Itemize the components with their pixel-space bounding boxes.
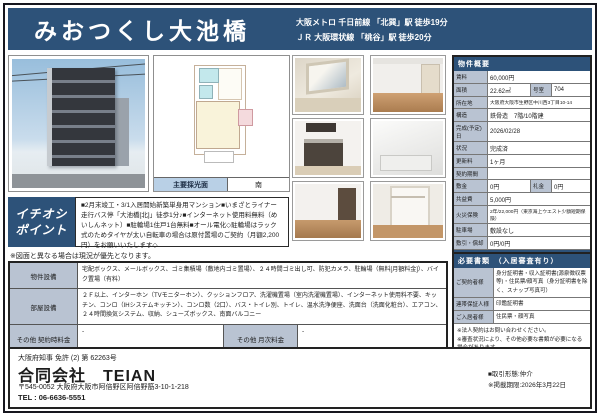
- window: [306, 58, 349, 94]
- fire-insurance-label: 火災保険: [454, 206, 488, 223]
- table-row: 物件設備 宅配ボックス、メールボックス、ゴミ集積場（敷地内ゴミ置場）、２４時間ゴ…: [10, 263, 446, 289]
- bathtub: [380, 155, 432, 171]
- table-row: ご契約者様 身分証明書・収入証明書(源泉徴収票等)・住民票/顔写真（身分証明書を…: [454, 268, 590, 298]
- kitchen-counter: [304, 139, 342, 166]
- highlight-label: イチオシ ポイント: [8, 197, 75, 247]
- floorplan-balcony: [204, 151, 234, 163]
- interior-photo-6: [370, 181, 446, 241]
- table-row: 更新料 1ヶ月: [454, 155, 590, 168]
- building: [47, 68, 116, 166]
- address-value: 大阪府大阪市生野区中川西3丁目10-14: [488, 97, 590, 108]
- table-row: 完成(予定)日 2026/02/28: [454, 122, 590, 142]
- status-value: 完成済: [488, 142, 590, 154]
- contractor-documents: 身分証明書・収入証明書(源泉徴収票等)・住民票/顔写真（身分証明書を除く、スナッ…: [494, 268, 590, 297]
- key-money-label: 礼金: [530, 180, 552, 192]
- doorway: [338, 188, 356, 220]
- common-fee-value: 5,000円: [488, 193, 590, 205]
- table-row: 部屋設備 ２Ｆ以上、インターホン（TVモニターホン）、クッションフロア、洗濯機置…: [10, 289, 446, 325]
- interior-photo-4: [370, 118, 446, 178]
- access-line-2: ＪＲ 大阪環状線 「桃谷」駅 徒歩20分: [296, 30, 448, 45]
- highlight-label-line2: ポイント: [15, 222, 67, 238]
- lighting-direction-bar: 主要採光面 南: [154, 177, 289, 191]
- rent-value: 60,000円: [488, 71, 590, 83]
- table-row: 共益費 5,000円: [454, 193, 590, 206]
- structure-label: 構造: [454, 109, 488, 121]
- address-label: 所在地: [454, 97, 488, 108]
- highlight-text: ■2月末竣工・3/1入居開始新築単身用マンション■いまざとライナー走行バス停「大…: [75, 197, 289, 247]
- door: [421, 64, 440, 95]
- renewal-fee-value: 1ヶ月: [488, 155, 590, 167]
- contractor-label: ご契約者様: [454, 268, 494, 297]
- floorplan-frame: 主要採光面 南: [153, 55, 290, 192]
- table-row: 面積 22.62㎡ 号室 704: [454, 84, 590, 97]
- parking-label: 駐車場: [454, 224, 488, 236]
- table-row: 所在地 大阪府大阪市生野区中川西3丁目10-14: [454, 97, 590, 109]
- property-title: みおつくし大池橋: [34, 12, 250, 46]
- interior-photo-2: [370, 55, 446, 115]
- table-row: 敷引・償却 0円/0円: [454, 237, 590, 250]
- resident-documents: 住民票・顔写真: [494, 311, 590, 323]
- building-photo: [12, 59, 145, 188]
- table-row: 駐車場 敷設なし: [454, 224, 590, 237]
- station-access: 大阪メトロ 千日前線 「北巽」駅 徒歩19分 ＪＲ 大阪環状線 「桃谷」駅 徒歩…: [296, 15, 448, 45]
- access-line-1: 大阪メトロ 千日前線 「北巽」駅 徒歩19分: [296, 15, 448, 30]
- property-equipment-value: 宅配ボックス、メールボックス、ゴミ集積場（敷地内ゴミ置場）、２４時間ゴミ出し可、…: [78, 263, 446, 288]
- closet: [390, 186, 430, 228]
- property-flyer: みおつくし大池橋 大阪メトロ 千日前線 「北巽」駅 徒歩19分 ＪＲ 大阪環状線…: [0, 0, 600, 416]
- table-row: 状況 完成済: [454, 142, 590, 155]
- documents-note-1: ※法人契約はお問い合わせください。: [457, 327, 587, 336]
- table-row: 火災保険 2年/22,000円（東京海上ウエスト少額短期保険）: [454, 206, 590, 224]
- building-photo-frame: [8, 55, 149, 192]
- interior-photo-5: [292, 181, 364, 241]
- road: [12, 174, 145, 188]
- floorplan-bath: [199, 68, 219, 83]
- company-info: 大阪府知事 免許 (2) 第 62263号 合同会社 TEIAN 〒545-00…: [8, 347, 592, 409]
- equipment-table: 物件設備 宅配ボックス、メールボックス、ゴミ集積場（敷地内ゴミ置場）、２４時間ゴ…: [8, 261, 448, 355]
- guarantor-documents: 印鑑証明書: [494, 298, 590, 310]
- kitchen-cabinet: [306, 123, 336, 132]
- table-row: 構造 鉄骨造 7階/10階建: [454, 109, 590, 122]
- table-row: 契約期間: [454, 168, 590, 180]
- contract-term-label: 契約期間: [454, 168, 488, 179]
- overview-header: 物件概要: [454, 57, 590, 71]
- common-fee-label: 共益費: [454, 193, 488, 205]
- rent-label: 賃料: [454, 71, 488, 83]
- table-row: ご入居者様 住民票・顔写真: [454, 311, 590, 324]
- interior-photo-1: [292, 55, 364, 115]
- deposit-value: 0円: [488, 180, 530, 192]
- completion-label: 完成(予定)日: [454, 122, 488, 141]
- room-number-value: 704: [552, 84, 590, 96]
- floorplan-closet: [238, 109, 253, 126]
- status-label: 状況: [454, 142, 488, 154]
- property-equipment-label: 物件設備: [10, 263, 78, 288]
- interior-photo-grid: [292, 55, 448, 241]
- structure-value: 鉄骨造 7階/10階建: [488, 109, 590, 121]
- renewal-fee-label: 更新料: [454, 155, 488, 167]
- lighting-direction-label: 主要採光面: [154, 178, 228, 191]
- floorplan-main-room: [196, 101, 240, 149]
- table-row: 賃料 60,000円: [454, 71, 590, 84]
- listing-meta: ■取引形態:仲介 ※掲載期限:2026年3月22日: [488, 369, 566, 391]
- completion-value: 2026/02/28: [488, 122, 590, 141]
- shikibiki-label: 敷引・償却: [454, 237, 488, 249]
- required-documents: 必要書類 （入居審査有り） ご契約者様 身分証明書・収入証明書(源泉徴収票等)・…: [452, 252, 592, 358]
- room-equipment-value: ２Ｆ以上、インターホン（TVモニターホン）、クッションフロア、洗濯機置場（室内洗…: [78, 289, 446, 324]
- deal-type: ■取引形態:仲介: [488, 369, 566, 380]
- resident-label: ご入居者様: [454, 311, 494, 323]
- interior-photo-3: [292, 118, 364, 178]
- contract-term-value: [488, 168, 590, 179]
- shikibiki-value: 0円/0円: [488, 237, 590, 249]
- header-bar: みおつくし大池橋 大阪メトロ 千日前線 「北巽」駅 徒歩19分 ＪＲ 大阪環状線…: [8, 8, 592, 50]
- room-number-label: 号室: [530, 84, 552, 96]
- wood-floor: [373, 225, 443, 238]
- key-money-value: 0円: [552, 180, 590, 192]
- closet-shelf: [391, 196, 425, 198]
- wood-floor: [373, 93, 443, 112]
- floorplan-wc: [199, 85, 213, 99]
- wood-floor: [295, 220, 361, 238]
- area-value: 22.62㎡: [488, 84, 530, 96]
- lighting-direction-value: 南: [228, 178, 289, 191]
- documents-header: 必要書類 （入居審査有り）: [454, 254, 590, 268]
- floor: [295, 166, 361, 175]
- highlight-label-line1: イチオシ: [15, 206, 67, 222]
- area-label: 面積: [454, 84, 488, 96]
- deposit-label: 敷金: [454, 180, 488, 192]
- table-row: 敷金 0円 礼金 0円: [454, 180, 590, 193]
- parking-value: 敷設なし: [488, 224, 590, 236]
- table-row: 連帯保証人様 印鑑証明書: [454, 298, 590, 311]
- company-address: 〒545-0052 大阪府大阪市阿倍野区阿倍野筋3-10-1-218: [18, 382, 189, 392]
- floorplan-hall: [218, 68, 242, 100]
- company-phone: TEL : 06-6636-5551: [18, 393, 85, 402]
- fire-insurance-value: 2年/22,000円（東京海上ウエスト少額短期保険）: [488, 206, 590, 223]
- guarantor-label: 連帯保証人様: [454, 298, 494, 310]
- plan-disclaimer: ※図面と異なる場合は現況が優先となります。: [10, 251, 155, 261]
- floor: [295, 98, 361, 112]
- room-equipment-label: 部屋設備: [10, 289, 78, 324]
- floorplan-drawing: [192, 65, 252, 168]
- listing-deadline: ※掲載期限:2026年3月22日: [488, 380, 566, 391]
